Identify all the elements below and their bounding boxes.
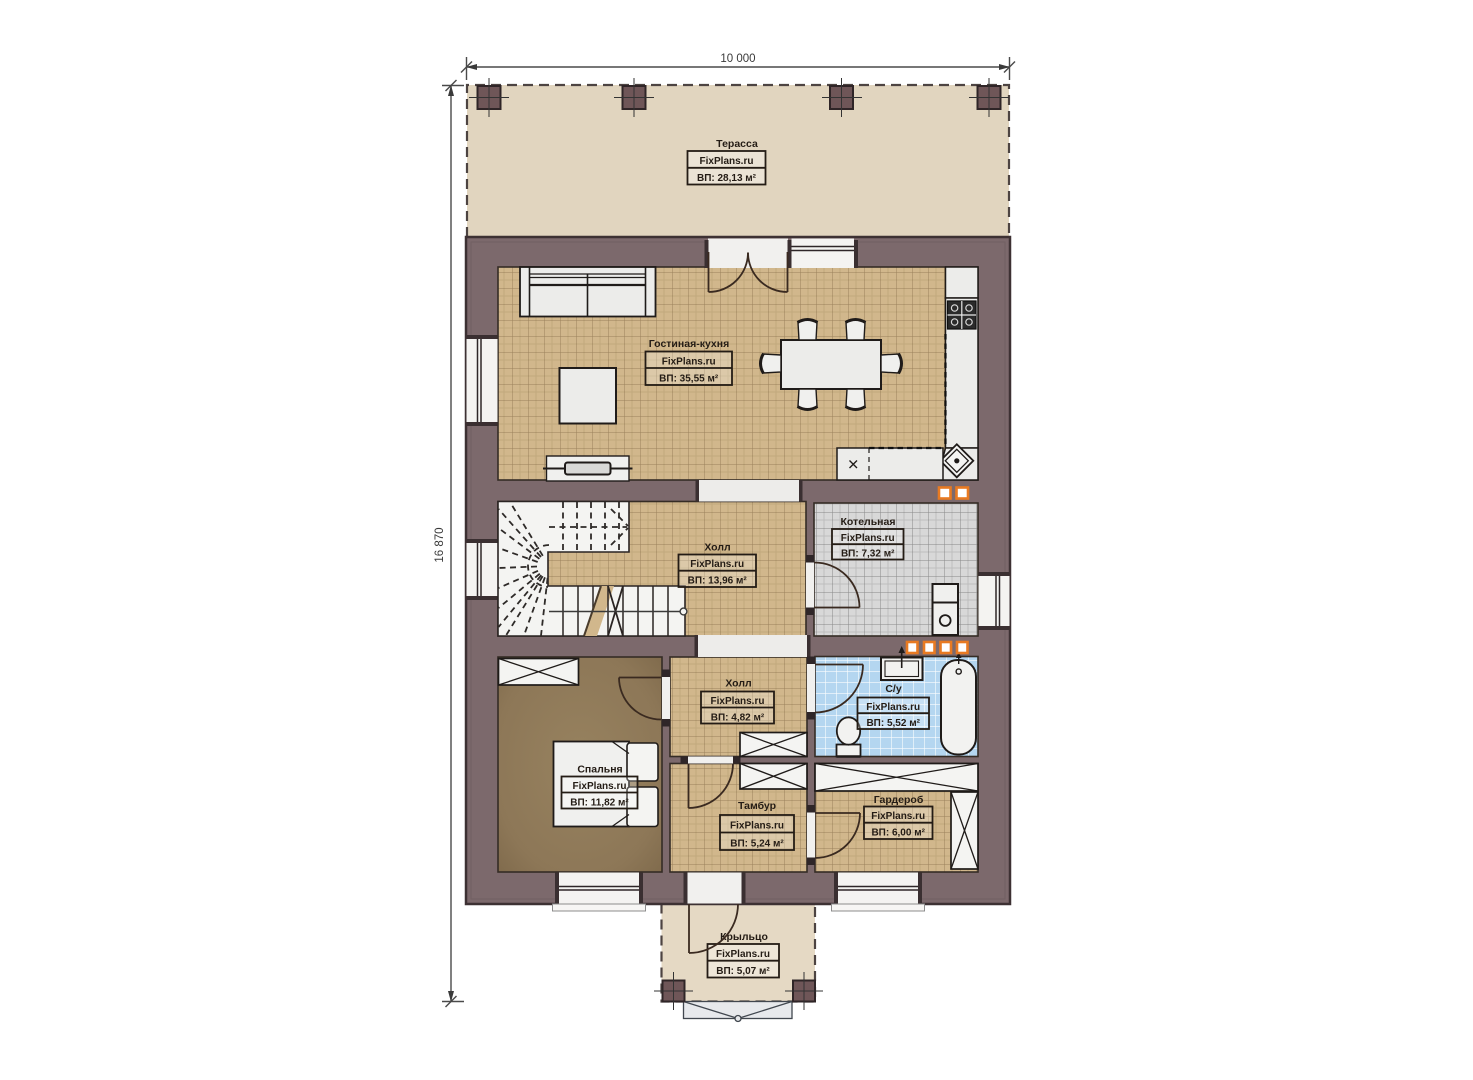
svg-text:FixPlans.ru: FixPlans.ru (730, 821, 784, 832)
svg-text:FixPlans.ru: FixPlans.ru (711, 696, 765, 707)
svg-text:ВП: 28,13 м²: ВП: 28,13 м² (697, 173, 757, 184)
svg-text:ВП: 5,24 м²: ВП: 5,24 м² (730, 839, 784, 850)
svg-text:Терасса: Терасса (716, 138, 758, 150)
svg-text:FixPlans.ru: FixPlans.ru (662, 356, 716, 367)
svg-text:ВП: 5,07 м²: ВП: 5,07 м² (716, 966, 770, 977)
svg-text:FixPlans.ru: FixPlans.ru (841, 533, 895, 544)
svg-text:Гардероб: Гардероб (874, 794, 924, 806)
svg-text:Холл: Холл (704, 542, 730, 554)
svg-text:С/у: С/у (885, 683, 902, 695)
svg-text:ВП: 5,52 м²: ВП: 5,52 м² (866, 718, 920, 729)
svg-text:ВП: 4,82 м²: ВП: 4,82 м² (711, 712, 765, 723)
svg-text:Спальня: Спальня (577, 764, 622, 776)
svg-text:FixPlans.ru: FixPlans.ru (716, 949, 770, 960)
svg-text:16 870: 16 870 (434, 527, 446, 562)
svg-text:Котельная: Котельная (841, 516, 896, 528)
svg-text:ВП: 11,82 м²: ВП: 11,82 м² (570, 797, 629, 808)
svg-text:FixPlans.ru: FixPlans.ru (690, 559, 744, 570)
svg-text:10 000: 10 000 (720, 53, 755, 65)
svg-text:FixPlans.ru: FixPlans.ru (573, 781, 627, 792)
svg-text:ВП: 6,00 м²: ВП: 6,00 м² (871, 828, 925, 839)
svg-text:ВП: 35,55 м²: ВП: 35,55 м² (659, 373, 719, 384)
svg-text:FixPlans.ru: FixPlans.ru (871, 811, 925, 822)
svg-text:Крыльцо: Крыльцо (720, 931, 768, 943)
svg-text:ВП: 13,96 м²: ВП: 13,96 м² (688, 576, 748, 587)
svg-text:Тамбур: Тамбур (738, 800, 776, 812)
svg-text:FixPlans.ru: FixPlans.ru (866, 702, 920, 713)
svg-text:FixPlans.ru: FixPlans.ru (700, 156, 754, 167)
svg-text:Холл: Холл (725, 678, 751, 690)
svg-text:Гостиная-кухня: Гостиная-кухня (649, 338, 729, 350)
svg-text:ВП: 7,32 м²: ВП: 7,32 м² (841, 548, 895, 559)
